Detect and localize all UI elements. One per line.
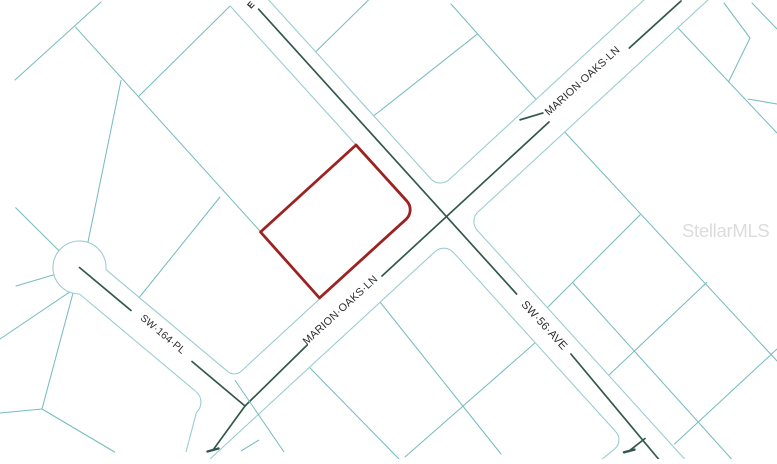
svg-text:StellarMLS: StellarMLS: [682, 220, 769, 241]
